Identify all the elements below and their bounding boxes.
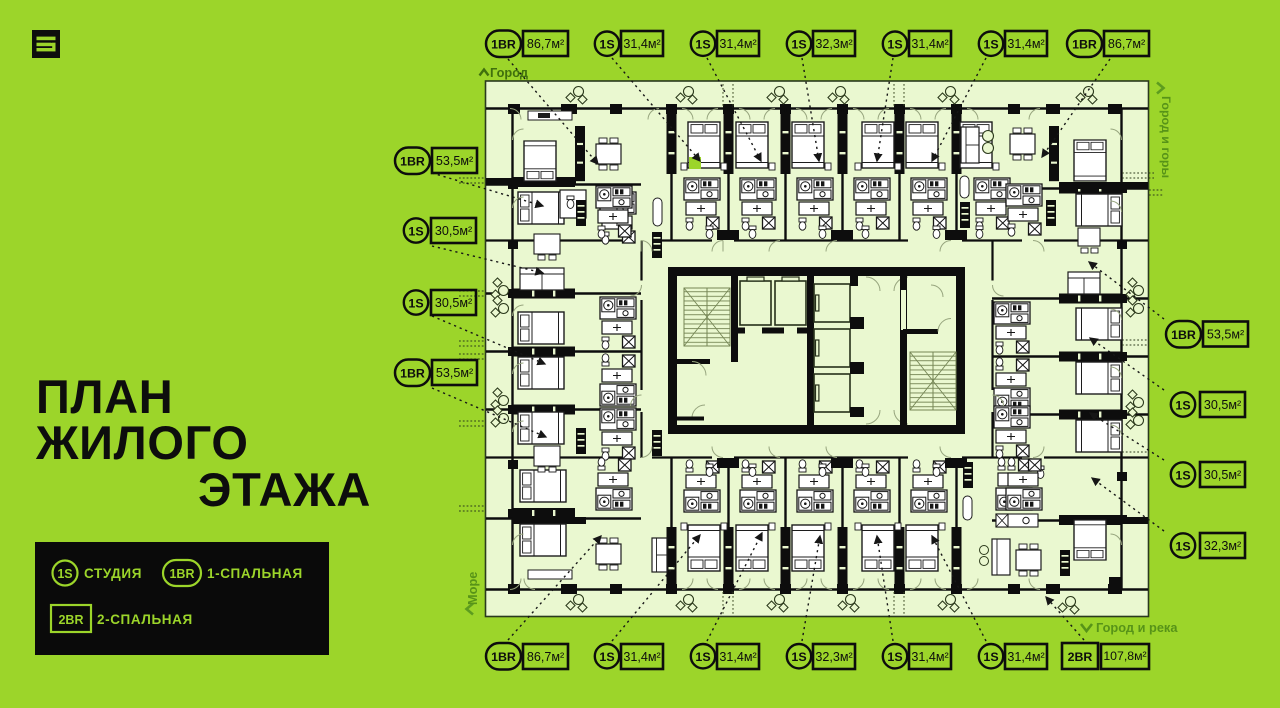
svg-text:1S: 1S <box>1175 398 1190 412</box>
svg-text:1BR: 1BR <box>400 155 425 169</box>
svg-text:53,5м²: 53,5м² <box>436 154 473 168</box>
svg-text:1BR: 1BR <box>169 567 194 581</box>
svg-text:1BR: 1BR <box>491 38 516 52</box>
svg-text:1S: 1S <box>695 38 710 52</box>
svg-text:86,7м²: 86,7м² <box>1108 37 1145 51</box>
svg-text:1S: 1S <box>887 38 902 52</box>
svg-text:1BR: 1BR <box>400 367 425 381</box>
svg-text:31,4м²: 31,4м² <box>719 37 756 51</box>
svg-text:1BR: 1BR <box>491 650 516 664</box>
svg-text:1S: 1S <box>599 38 614 52</box>
svg-text:31,4м²: 31,4м² <box>719 650 756 664</box>
svg-text:1S: 1S <box>983 650 998 664</box>
svg-text:1S: 1S <box>1175 468 1190 482</box>
svg-text:1S: 1S <box>599 650 614 664</box>
svg-text:1S: 1S <box>887 650 902 664</box>
svg-text:86,7м²: 86,7м² <box>527 37 564 51</box>
svg-text:30,5м²: 30,5м² <box>435 224 472 238</box>
svg-text:86,7м²: 86,7м² <box>527 650 564 664</box>
svg-text:31,4м²: 31,4м² <box>1007 37 1044 51</box>
svg-text:107,8м²: 107,8м² <box>1103 649 1146 663</box>
svg-text:32,3м²: 32,3м² <box>815 37 852 51</box>
svg-text:53,5м²: 53,5м² <box>1207 328 1244 342</box>
svg-text:30,5м²: 30,5м² <box>435 296 472 310</box>
svg-text:1S: 1S <box>1175 539 1190 553</box>
svg-text:1S: 1S <box>983 38 998 52</box>
svg-text:2BR: 2BR <box>1068 650 1093 664</box>
svg-text:1-СПАЛЬНАЯ: 1-СПАЛЬНАЯ <box>207 566 303 581</box>
svg-text:Город: Город <box>490 65 528 80</box>
svg-text:30,5м²: 30,5м² <box>1204 468 1241 482</box>
svg-text:1S: 1S <box>408 296 423 310</box>
svg-text:31,4м²: 31,4м² <box>911 37 948 51</box>
svg-text:1BR: 1BR <box>1072 38 1097 52</box>
svg-text:32,3м²: 32,3м² <box>815 650 852 664</box>
svg-text:СТУДИЯ: СТУДИЯ <box>84 566 142 581</box>
svg-text:1S: 1S <box>791 650 806 664</box>
svg-text:2-СПАЛЬНАЯ: 2-СПАЛЬНАЯ <box>97 612 193 627</box>
svg-text:30,5м²: 30,5м² <box>1204 398 1241 412</box>
svg-text:Город и горы: Город и горы <box>1159 96 1173 178</box>
svg-text:53,5м²: 53,5м² <box>436 366 473 380</box>
svg-text:2BR: 2BR <box>58 613 83 627</box>
svg-text:Море: Море <box>465 572 480 605</box>
svg-text:1S: 1S <box>408 224 423 238</box>
svg-text:31,4м²: 31,4м² <box>911 650 948 664</box>
svg-text:1S: 1S <box>695 650 710 664</box>
svg-text:31,4м²: 31,4м² <box>1007 650 1044 664</box>
svg-text:Город и река: Город и река <box>1096 620 1178 635</box>
svg-text:1BR: 1BR <box>1171 328 1196 342</box>
svg-text:32,3м²: 32,3м² <box>1204 539 1241 553</box>
svg-text:31,4м²: 31,4м² <box>623 37 660 51</box>
svg-text:1S: 1S <box>791 38 806 52</box>
svg-text:ЖИЛОГО: ЖИЛОГО <box>35 416 249 469</box>
svg-text:31,4м²: 31,4м² <box>623 650 660 664</box>
svg-text:ЭТАЖА: ЭТАЖА <box>198 463 371 516</box>
svg-text:1S: 1S <box>57 567 72 581</box>
